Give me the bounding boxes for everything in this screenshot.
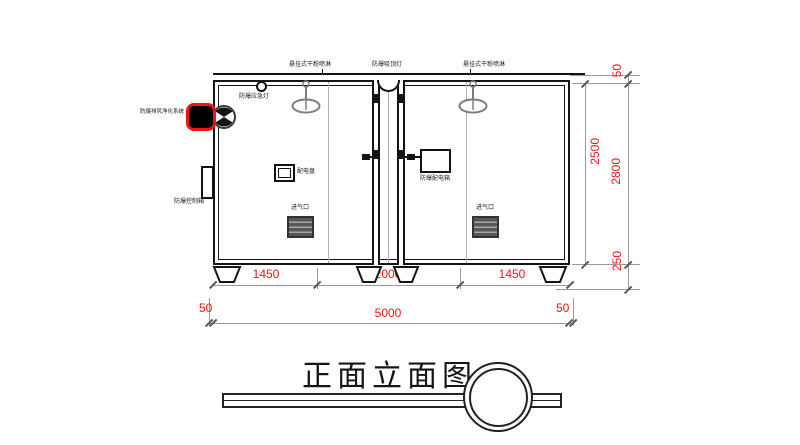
extension-line (570, 75, 640, 76)
dim-bay-right-1450: 1450 (486, 268, 538, 280)
dim-margin-right-50: 50 (556, 302, 569, 314)
roof-line (213, 73, 585, 75)
detail-circle-inner (469, 368, 528, 427)
drawing-title: 正面立面图 (302, 351, 477, 395)
panel-seam-right (466, 82, 467, 263)
dim-right-top-50: 50 (611, 64, 623, 77)
power-panel-inner (278, 168, 291, 178)
exhaust-purifier-label: 防爆排风净化系统 (126, 109, 184, 115)
side-bracket-right (407, 154, 415, 160)
door-centerline (388, 82, 389, 263)
dimension-line-2800 (628, 75, 629, 290)
dim-bay-left-1450: 1450 (240, 268, 292, 280)
ceiling-light-label: 防爆吸顶灯 (362, 62, 412, 69)
sprinkler-right-label: 悬挂式干粉喷淋 (452, 62, 516, 69)
side-bracket-left (362, 154, 370, 160)
emergency-light-label: 防爆应急灯 (239, 94, 269, 101)
emergency-light-icon (256, 81, 267, 92)
dim-right-250: 250 (611, 251, 623, 271)
dimension-line-2500 (585, 84, 586, 265)
hinge-block (398, 94, 404, 103)
bracket-pin (370, 156, 374, 158)
container-inner-wall-line (218, 85, 565, 260)
distribution-box (420, 149, 451, 173)
air-inlet-left-label: 进气口 (287, 205, 313, 212)
dim-overall-5000: 5000 (360, 307, 416, 319)
dim-bay-center-2000: 2000 (362, 268, 414, 280)
dim-right-2500: 2500 (589, 138, 601, 165)
dim-tick (566, 281, 574, 289)
detail-circle-symbol (463, 362, 533, 432)
power-panel-box (274, 164, 295, 182)
control-box (201, 166, 214, 199)
air-inlet-right-vent (472, 216, 499, 238)
door-post-left (372, 80, 380, 265)
power-panel-label: 配电盘 (297, 169, 315, 176)
dimension-line-bays (213, 285, 570, 286)
hinge-block (373, 94, 379, 103)
control-box-label: 防爆控制箱 (174, 199, 204, 206)
exhaust-purifier-unit (186, 103, 216, 131)
bracket-pin (404, 156, 407, 158)
distribution-box-label: 防爆配电箱 (412, 176, 458, 183)
dimension-line-overall (209, 323, 574, 324)
panel-seam-left (328, 82, 329, 263)
dim-margin-left-50: 50 (199, 302, 212, 314)
dim-right-2800: 2800 (610, 158, 622, 185)
sprinkler-left-label: 悬挂式干粉喷淋 (278, 62, 342, 69)
air-inlet-left-vent (287, 216, 314, 238)
door-post-right (397, 80, 405, 265)
elevation-drawing-canvas: 悬挂式干粉喷淋 防爆吸顶灯 悬挂式干粉喷淋 防爆应急灯 防爆排风净化系统 防爆控… (0, 0, 800, 445)
air-inlet-right-label: 进气口 (472, 205, 498, 212)
